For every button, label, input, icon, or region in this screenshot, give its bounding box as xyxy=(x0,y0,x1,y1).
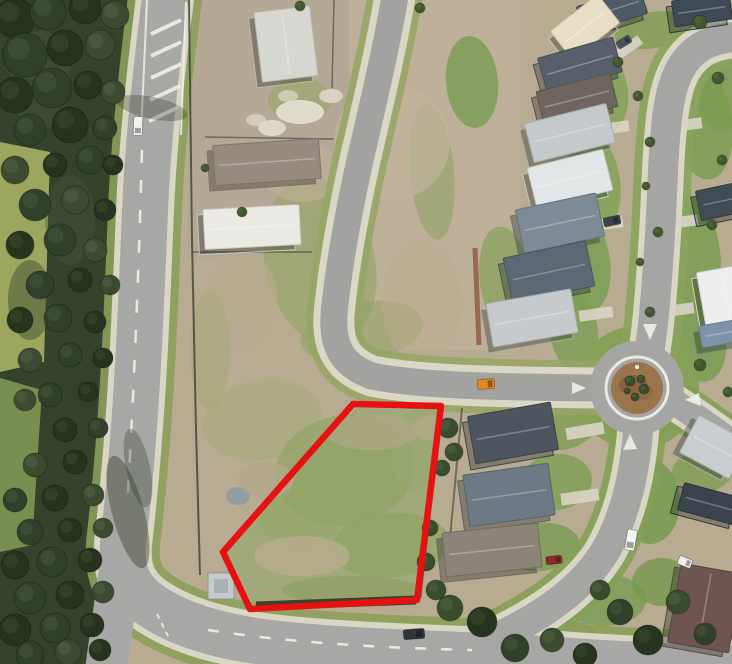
tree-highlight xyxy=(640,385,645,390)
tree-highlight xyxy=(18,118,34,134)
tree-highlight xyxy=(504,637,518,651)
tree xyxy=(201,164,209,172)
tree xyxy=(93,518,113,538)
tree-highlight xyxy=(636,628,651,643)
aerial-photo-viewport xyxy=(0,0,732,664)
tree xyxy=(44,224,76,256)
tree-highlight xyxy=(77,74,91,88)
tree xyxy=(58,343,82,367)
tree-highlight xyxy=(86,241,98,253)
tree xyxy=(624,388,630,394)
sand-patch xyxy=(319,89,343,103)
tree-highlight xyxy=(6,491,18,503)
tree xyxy=(74,71,102,99)
tree xyxy=(103,155,123,175)
tree-highlight xyxy=(696,625,707,636)
tree xyxy=(78,382,98,402)
tree xyxy=(89,639,111,661)
tree-highlight xyxy=(59,584,73,598)
tree-highlight xyxy=(695,360,701,366)
tree xyxy=(40,613,70,643)
tree-highlight xyxy=(416,4,421,9)
tree xyxy=(82,484,104,506)
sand-patch xyxy=(246,114,266,126)
tree-highlight xyxy=(40,550,55,565)
car-red-driveway xyxy=(546,555,563,565)
tree xyxy=(42,485,68,511)
tree-highlight xyxy=(632,394,636,398)
tree-highlight xyxy=(669,593,681,605)
tree-highlight xyxy=(238,208,243,213)
tree-highlight xyxy=(29,274,43,288)
tree-highlight xyxy=(95,350,105,360)
tree xyxy=(6,231,34,259)
tree-highlight xyxy=(447,445,456,454)
car-windshield xyxy=(488,380,493,387)
tree-highlight xyxy=(45,488,58,501)
tree xyxy=(693,15,707,29)
aerial-photo xyxy=(0,0,732,664)
car-windshield xyxy=(416,630,422,637)
tree-highlight xyxy=(79,149,93,163)
tree xyxy=(101,1,129,29)
tree xyxy=(23,453,47,477)
tree xyxy=(56,581,84,609)
vehicle-orange xyxy=(477,379,495,390)
tree xyxy=(101,80,125,104)
tree-highlight xyxy=(637,259,641,263)
tree-highlight xyxy=(3,618,19,634)
house-construction-3 xyxy=(197,205,301,255)
tree-highlight xyxy=(96,201,107,212)
tree xyxy=(3,33,47,77)
tree-highlight xyxy=(91,641,102,652)
car-dark-bottom-road xyxy=(403,628,425,639)
tree-highlight xyxy=(88,33,103,48)
tree xyxy=(68,268,92,292)
tree xyxy=(80,613,104,637)
tree-highlight xyxy=(64,189,78,203)
tree xyxy=(58,518,82,542)
tree-highlight xyxy=(83,616,95,628)
tree xyxy=(63,450,87,474)
tree-highlight xyxy=(646,308,651,313)
tree-highlight xyxy=(695,17,702,24)
tree xyxy=(14,582,46,614)
tree xyxy=(93,116,117,140)
tree xyxy=(645,307,655,317)
tree xyxy=(100,275,120,295)
tree xyxy=(540,628,564,652)
tree-highlight xyxy=(86,313,97,324)
tree xyxy=(1,156,29,184)
tree-highlight xyxy=(56,421,68,433)
tree xyxy=(26,271,54,299)
tree-highlight xyxy=(104,4,118,18)
tree xyxy=(1,551,29,579)
tree xyxy=(19,189,51,221)
tree xyxy=(467,607,497,637)
tree-highlight xyxy=(296,2,301,7)
house-construction-2 xyxy=(207,138,322,191)
tree-highlight xyxy=(61,346,73,358)
tree xyxy=(707,220,717,230)
tree xyxy=(47,30,83,66)
tree xyxy=(666,590,690,614)
tree-highlight xyxy=(26,456,38,468)
tree xyxy=(694,359,706,371)
tree xyxy=(590,580,610,600)
tree xyxy=(415,3,425,13)
tree xyxy=(295,1,305,11)
tree-highlight xyxy=(440,598,453,611)
tree xyxy=(717,155,727,165)
tree xyxy=(52,107,88,143)
tree xyxy=(0,77,33,113)
tree xyxy=(642,182,650,190)
tree-highlight xyxy=(718,156,723,161)
tree xyxy=(44,304,72,332)
tree xyxy=(16,641,44,664)
tree-highlight xyxy=(713,73,719,79)
tree-highlight xyxy=(102,277,112,287)
tree xyxy=(84,311,106,333)
tree-highlight xyxy=(36,72,56,92)
tree-highlight xyxy=(20,522,33,535)
sand-patch xyxy=(278,90,298,102)
tree xyxy=(38,383,62,407)
tree xyxy=(37,547,67,577)
tree xyxy=(633,625,663,655)
tree-highlight xyxy=(614,58,619,63)
tree-highlight xyxy=(643,183,647,187)
tree xyxy=(613,57,623,67)
tree-highlight xyxy=(56,111,74,129)
tree xyxy=(30,0,66,30)
car-windshield xyxy=(555,557,560,562)
tree-highlight xyxy=(96,119,108,131)
tree-highlight xyxy=(80,384,90,394)
tree xyxy=(645,137,655,147)
house-construction-1 xyxy=(248,6,319,88)
tree xyxy=(607,599,633,625)
tree-highlight xyxy=(66,453,78,465)
tree-highlight xyxy=(58,642,71,655)
tree xyxy=(78,548,102,572)
tree-highlight xyxy=(18,586,34,602)
parcel-dirt xyxy=(254,536,350,576)
tree-highlight xyxy=(105,157,115,167)
tree-highlight xyxy=(43,616,58,631)
tree-highlight xyxy=(592,582,602,592)
tree xyxy=(637,375,645,383)
tree xyxy=(639,384,649,394)
tree xyxy=(43,153,67,177)
tree xyxy=(94,199,116,221)
car-white-main-road xyxy=(133,116,143,135)
tree-highlight xyxy=(626,377,631,382)
tree-highlight xyxy=(90,420,100,430)
tree-highlight xyxy=(654,228,659,233)
tree-highlight xyxy=(46,156,58,168)
tree-highlight xyxy=(646,138,651,143)
tree-highlight xyxy=(0,2,19,22)
tree-highlight xyxy=(470,610,485,625)
tree xyxy=(61,186,89,214)
tree xyxy=(501,634,529,662)
tree-highlight xyxy=(71,271,83,283)
tree xyxy=(88,418,108,438)
tree-highlight xyxy=(23,193,39,209)
tree-highlight xyxy=(19,644,33,658)
tree xyxy=(76,146,104,174)
tree-highlight xyxy=(104,83,116,95)
field-dirt xyxy=(382,240,462,364)
tree-highlight xyxy=(8,38,30,60)
tree-highlight xyxy=(4,159,18,173)
tree xyxy=(17,519,43,545)
tree-highlight xyxy=(10,310,23,323)
tree-highlight xyxy=(576,646,588,658)
tree-highlight xyxy=(47,307,61,321)
tree xyxy=(723,387,732,397)
utility-pad-inner xyxy=(214,579,228,593)
tree xyxy=(32,68,72,108)
tree-highlight xyxy=(95,520,105,530)
tree-highlight xyxy=(81,551,93,563)
tree xyxy=(14,389,36,411)
tree-highlight xyxy=(61,521,73,533)
tree xyxy=(237,207,247,217)
tree-highlight xyxy=(428,582,438,592)
tree-highlight xyxy=(41,386,53,398)
tree xyxy=(3,488,27,512)
tree-highlight xyxy=(84,486,95,497)
tree xyxy=(633,91,643,101)
island-sign xyxy=(635,365,639,369)
layer-roundabout xyxy=(590,341,684,435)
tree xyxy=(18,348,42,372)
tree xyxy=(636,258,644,266)
tree-highlight xyxy=(1,81,19,99)
house-brown-3 xyxy=(436,523,543,582)
tree-highlight xyxy=(708,221,713,226)
tree xyxy=(625,376,635,386)
tree xyxy=(92,581,114,603)
tree-highlight xyxy=(543,631,555,643)
tree xyxy=(445,443,463,461)
tree xyxy=(7,307,33,333)
tree xyxy=(85,30,115,60)
tree xyxy=(53,418,77,442)
tree xyxy=(694,623,716,645)
tree-highlight xyxy=(16,391,27,402)
tree-highlight xyxy=(51,34,69,52)
tree xyxy=(712,72,724,84)
tree-highlight xyxy=(610,602,623,615)
tree-highlight xyxy=(634,92,639,97)
tree xyxy=(83,238,107,262)
house-blue-2 xyxy=(457,463,556,532)
tree xyxy=(14,114,46,146)
tree-highlight xyxy=(4,554,18,568)
tree-highlight xyxy=(202,165,206,169)
car-windshield xyxy=(135,128,141,134)
layer-structures xyxy=(208,573,234,599)
car-windshield xyxy=(626,541,634,548)
tree xyxy=(55,639,81,664)
sand-patch xyxy=(276,100,324,124)
tree xyxy=(93,348,113,368)
tree-highlight xyxy=(724,388,729,393)
tree-highlight xyxy=(21,351,33,363)
tree xyxy=(653,227,663,237)
tree-highlight xyxy=(94,583,105,594)
tree-highlight xyxy=(9,234,23,248)
tree-highlight xyxy=(48,228,64,244)
tree xyxy=(573,643,597,664)
tree-highlight xyxy=(625,389,628,392)
tree-highlight xyxy=(638,376,642,380)
tree xyxy=(426,580,446,600)
tree xyxy=(631,393,639,401)
